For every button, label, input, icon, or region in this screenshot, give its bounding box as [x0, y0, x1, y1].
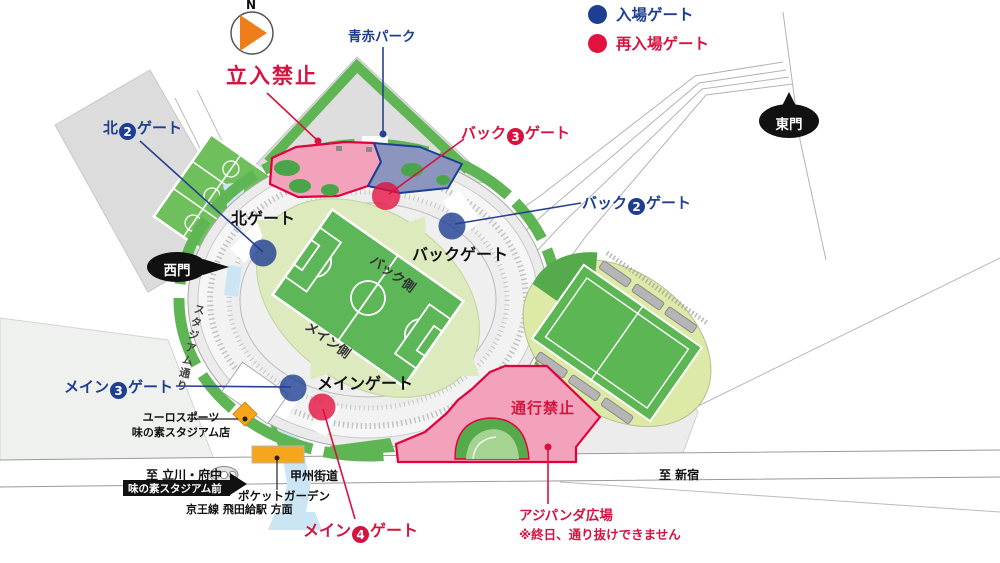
ajipanda-plaza-note: ※終日、通り抜けできません — [519, 524, 681, 543]
gate-dot-main3 — [280, 375, 307, 402]
compass-icon — [231, 12, 273, 54]
gate-number-badge: 4 — [352, 526, 369, 543]
gate-dot-back2 — [439, 213, 466, 240]
gate-number-badge: 3 — [507, 128, 524, 145]
bus-stop-label: 味の素スタジアム前 — [128, 481, 222, 496]
gate-label-north2: 北2ゲート — [103, 117, 182, 140]
east-mon-label: 東門 — [766, 113, 812, 133]
entry-gate-dot-icon — [588, 5, 607, 24]
legend-reentry-label: 再入場ゲート — [616, 32, 709, 54]
koshu-kaido-label: 甲州街道 — [290, 467, 338, 484]
compass-north-label: N — [246, 0, 256, 12]
gate-label-main4: メイン4ゲート — [303, 517, 418, 543]
gate-label-back2: バック2ゲート — [582, 192, 691, 215]
main-gate-label: メインゲート — [317, 370, 413, 394]
north-gate-label: 北ゲート — [231, 205, 295, 229]
reentry-gate-dot-icon — [588, 34, 607, 53]
aoaka-park-label: 青赤パーク — [348, 25, 416, 45]
legend-entry-gate: 入場ゲート — [588, 3, 709, 25]
gate-number-badge: 2 — [628, 198, 645, 215]
gate-number-badge: 2 — [119, 123, 136, 140]
back-gate-label: バックゲート — [412, 241, 508, 265]
ajipanda-plaza-label: アジパンダ広場 — [519, 504, 613, 524]
no-passage-label: 通行禁止 — [511, 397, 575, 418]
pocket-garden-building — [252, 446, 304, 463]
gate-number-badge: 3 — [110, 382, 127, 399]
eurosports-label: ユーロスポーツ 味の素スタジアム店 — [124, 410, 238, 441]
gate-label-main3: メイン3ゲート — [64, 376, 173, 399]
gate-dot-north2 — [250, 240, 277, 267]
keio-line-label: 京王線 飛田給駅 方面 — [186, 501, 293, 517]
legend: 入場ゲート 再入場ゲート — [588, 3, 709, 54]
gate-dot-back3 — [372, 182, 400, 210]
legend-entry-label: 入場ゲート — [616, 3, 694, 25]
legend-reentry-gate: 再入場ゲート — [588, 32, 709, 54]
gate-label-back3: バック3ゲート — [461, 122, 570, 145]
no-entry-label: 立入禁止 — [226, 60, 318, 90]
stadium-access-map: 入場ゲート 再入場ゲート N 青赤パーク 立入禁止 北2ゲート バック3ゲート … — [0, 0, 1000, 563]
to-shinjuku-label: 至 新宿 — [659, 466, 699, 483]
gate-dot-main4 — [309, 394, 336, 421]
west-mon-label: 西門 — [154, 259, 200, 279]
